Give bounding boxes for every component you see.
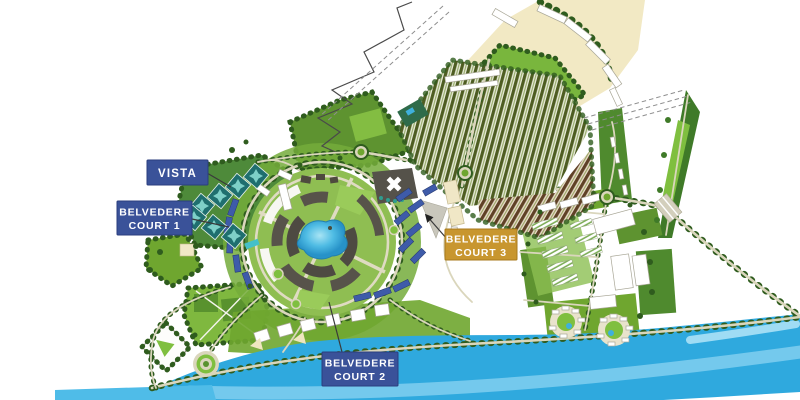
roundabout-northwest [354,145,368,159]
label-court3-line1: BELVEDERE [446,234,517,246]
label-court1-line2: COURT 1 [129,220,181,232]
label-vista: VISTA [147,160,208,185]
roundabout-east [600,190,614,204]
label-court3-line2: COURT 3 [455,247,507,259]
label-belvedere-court-2: BELVEDERE COURT 2 [322,352,398,386]
label-court1-line1: BELVEDERE [119,207,190,219]
site-plan-canvas: VISTA BELVEDERE COURT 1 BELVEDERE COURT … [0,0,800,400]
label-vista-text: VISTA [158,168,197,180]
diamond-parcel [142,323,190,371]
label-belvedere-court-3: BELVEDERE COURT 3 [445,229,517,260]
label-court2-line1: BELVEDERE [325,358,396,370]
river-strip [55,385,216,400]
label-court2-line2: COURT 2 [334,371,386,383]
label-belvedere-court-1: BELVEDERE COURT 1 [117,201,192,235]
masterplan-map: VISTA BELVEDERE COURT 1 BELVEDERE COURT … [0,0,800,400]
roundabout-garden-southwest [193,351,219,377]
roundabout-townhouse [458,166,472,180]
